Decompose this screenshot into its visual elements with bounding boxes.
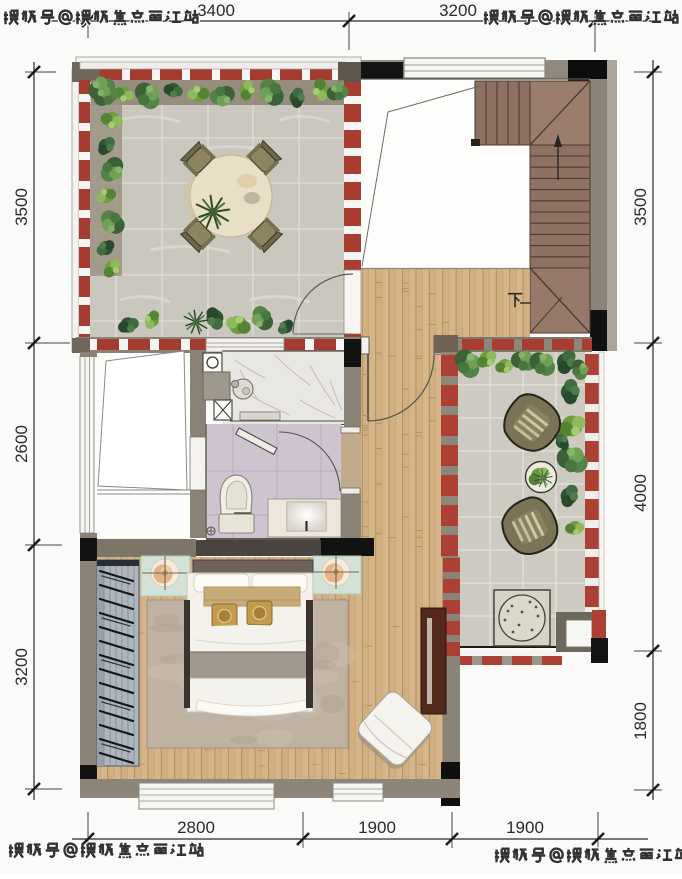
- svg-text:3500: 3500: [12, 188, 31, 226]
- svg-text:1900: 1900: [506, 818, 544, 837]
- svg-text:3200: 3200: [439, 1, 477, 20]
- svg-text:1900: 1900: [358, 818, 396, 837]
- svg-text:1800: 1800: [631, 702, 650, 740]
- svg-text:2600: 2600: [12, 425, 31, 463]
- svg-text:3200: 3200: [12, 648, 31, 686]
- svg-text:3400: 3400: [197, 1, 235, 20]
- svg-text:3500: 3500: [631, 188, 650, 226]
- svg-text:2800: 2800: [177, 818, 215, 837]
- svg-text:4000: 4000: [631, 474, 650, 512]
